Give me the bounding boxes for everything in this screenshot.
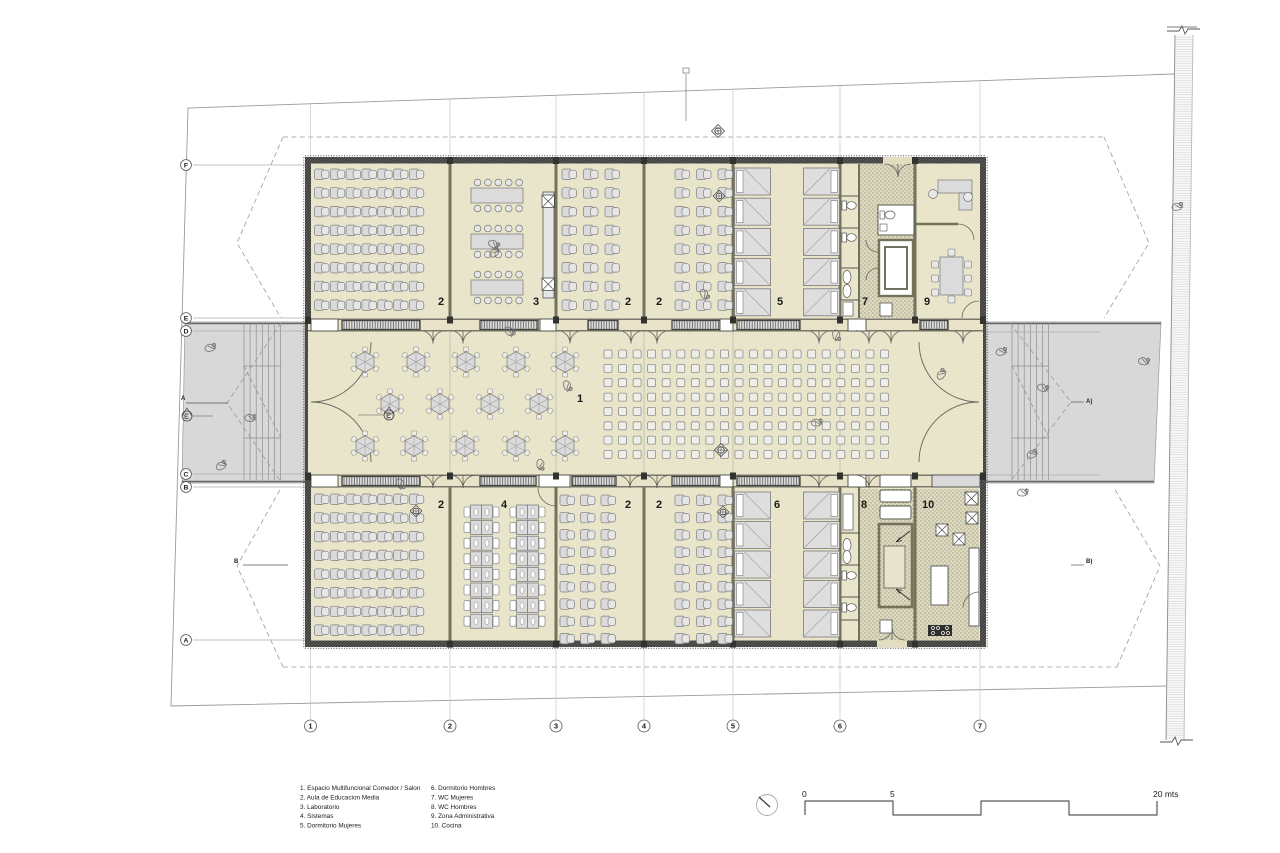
svg-text:7: 7 (862, 296, 868, 308)
svg-text:E: E (184, 315, 189, 322)
svg-text:10. Cocina: 10. Cocina (431, 823, 462, 830)
svg-text:0: 0 (802, 789, 807, 799)
svg-text:A): A) (1086, 399, 1092, 405)
svg-text:2: 2 (438, 499, 444, 511)
svg-text:2: 2 (625, 296, 631, 308)
svg-text:2: 2 (438, 296, 444, 308)
svg-text:9: 9 (924, 296, 930, 308)
svg-text:7. WC Mujeres: 7. WC Mujeres (431, 794, 473, 801)
svg-text:4: 4 (501, 499, 508, 511)
svg-text:8. WC Hombres: 8. WC Hombres (431, 804, 476, 811)
svg-text:3. Laboratorio: 3. Laboratorio (300, 804, 340, 811)
svg-text:2: 2 (656, 499, 662, 511)
svg-text:3: 3 (533, 296, 539, 308)
svg-text:D: D (184, 328, 189, 335)
svg-text:4. Sistemas: 4. Sistemas (300, 813, 333, 820)
svg-text:F: F (184, 162, 188, 169)
svg-text:6: 6 (838, 722, 842, 731)
svg-text:2. Aula de Educacion Media: 2. Aula de Educacion Media (300, 794, 380, 801)
svg-text:6. Dormitorio Hombres: 6. Dormitorio Hombres (431, 785, 495, 792)
svg-text:5: 5 (777, 296, 783, 308)
svg-text:7: 7 (978, 722, 982, 731)
svg-text:1: 1 (577, 393, 583, 405)
svg-text:1: 1 (308, 722, 312, 731)
svg-text:B: B (234, 559, 239, 565)
svg-text:2: 2 (625, 499, 631, 511)
svg-text:5: 5 (890, 789, 895, 799)
svg-text:9. Zona Administrativa: 9. Zona Administrativa (431, 813, 495, 820)
svg-text:B): B) (1086, 559, 1092, 565)
svg-text:A: A (181, 396, 186, 402)
svg-text:A: A (184, 637, 189, 644)
svg-text:5. Dormitorio Mujeres: 5. Dormitorio Mujeres (300, 823, 361, 830)
svg-text:B: B (184, 484, 189, 491)
svg-text:3: 3 (554, 722, 558, 731)
svg-text:20 mts: 20 mts (1153, 789, 1179, 799)
svg-text:10: 10 (922, 499, 934, 511)
svg-text:1. Espacio Multifuncional Come: 1. Espacio Multifuncional Comedor / Salo… (300, 785, 421, 792)
svg-text:2: 2 (448, 722, 452, 731)
svg-text:2: 2 (656, 296, 662, 308)
svg-text:5: 5 (731, 722, 735, 731)
svg-text:8: 8 (861, 499, 867, 511)
svg-text:6: 6 (774, 499, 780, 511)
svg-text:C: C (184, 471, 189, 478)
